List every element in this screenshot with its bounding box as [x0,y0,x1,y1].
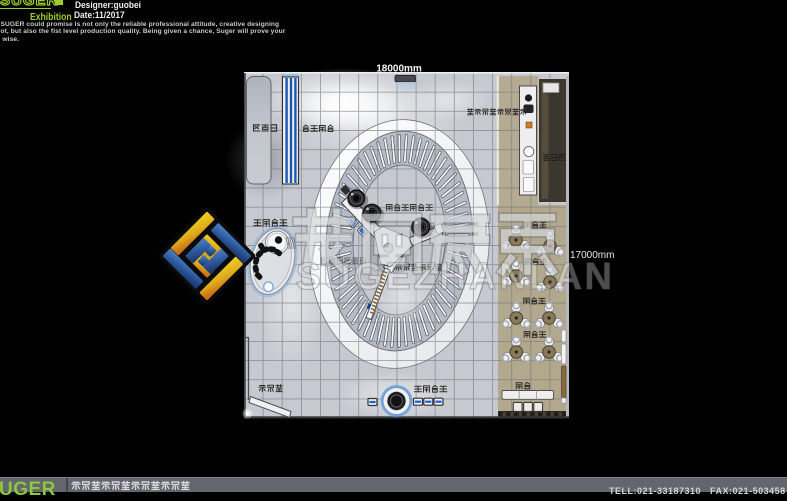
svg-text:18000mm: 18000mm [376,64,422,75]
svg-text:SUGEZHANLAN: SUGEZHANLAN [296,256,615,298]
